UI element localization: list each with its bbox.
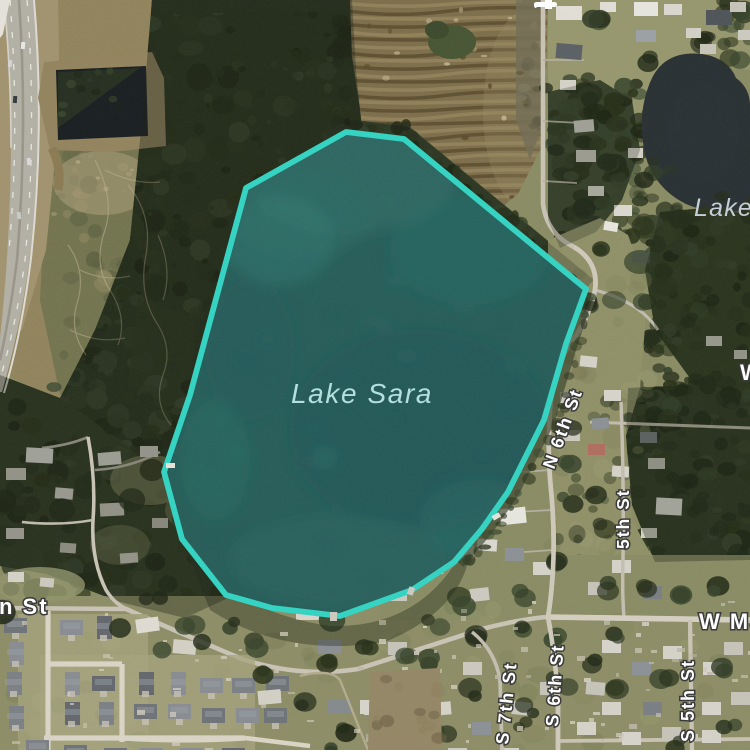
svg-text:Lake Sara: Lake Sara <box>291 378 433 409</box>
svg-text:Lake: Lake <box>694 194 750 222</box>
svg-text:W Ma: W Ma <box>699 609 750 634</box>
svg-text:n St: n St <box>0 594 49 619</box>
svg-text:W: W <box>740 360 750 385</box>
svg-text:S 5th St: S 5th St <box>678 659 698 742</box>
svg-text:5th St: 5th St <box>613 488 633 549</box>
